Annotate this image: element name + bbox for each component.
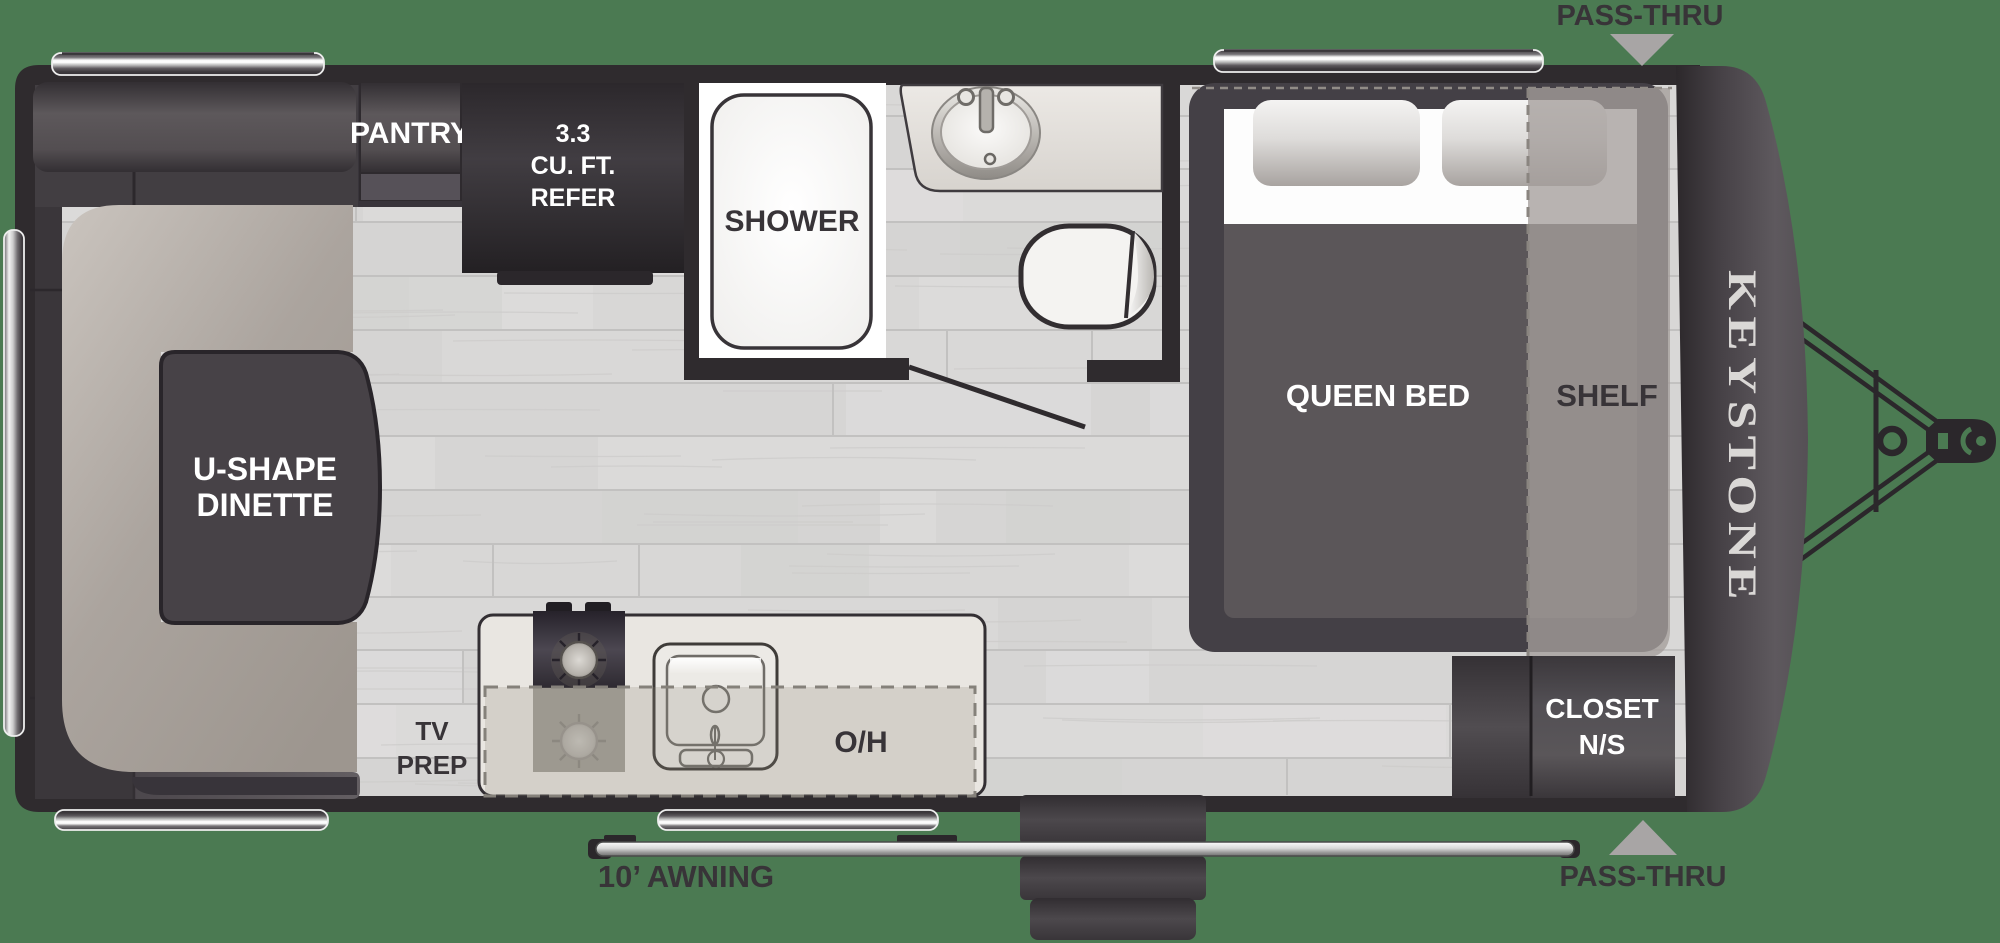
svg-text:DINETTE: DINETTE <box>197 487 334 523</box>
svg-text:REFER: REFER <box>531 184 616 212</box>
svg-text:PANTRY: PANTRY <box>350 117 470 150</box>
svg-text:CLOSET: CLOSET <box>1545 693 1659 724</box>
svg-text:PREP: PREP <box>397 750 468 780</box>
svg-text:TV: TV <box>415 716 449 746</box>
svg-text:QUEEN BED: QUEEN BED <box>1286 378 1470 413</box>
svg-text:PASS-THRU: PASS-THRU <box>1556 0 1723 32</box>
svg-text:N/S: N/S <box>1579 729 1626 760</box>
svg-text:SHOWER: SHOWER <box>725 205 860 238</box>
svg-text:KEYSTONE: KEYSTONE <box>1720 270 1765 606</box>
svg-text:SHELF: SHELF <box>1556 378 1658 413</box>
svg-text:O/H: O/H <box>834 726 887 759</box>
svg-text:PASS-THRU: PASS-THRU <box>1559 861 1726 893</box>
svg-text:3.3: 3.3 <box>556 120 591 148</box>
svg-text:CU. FT.: CU. FT. <box>531 152 616 180</box>
svg-text:U-SHAPE: U-SHAPE <box>193 451 337 487</box>
svg-text:10’ AWNING: 10’ AWNING <box>598 859 774 894</box>
